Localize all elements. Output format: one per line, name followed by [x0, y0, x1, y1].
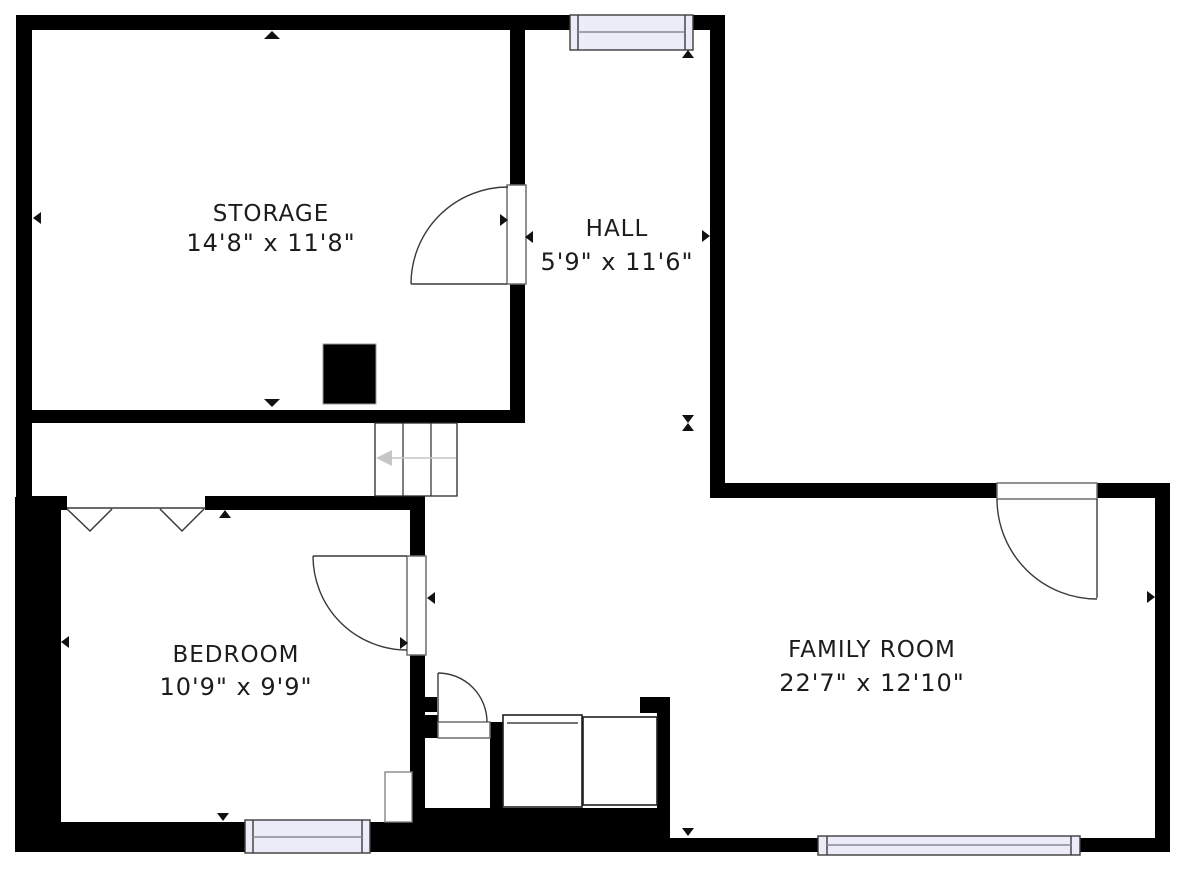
- door-opening: [438, 722, 490, 738]
- room-dims-hall: 5'9" x 11'6": [540, 248, 693, 276]
- door-swing-arc: [997, 499, 1097, 599]
- door-utility: [438, 673, 490, 738]
- floor-plan-canvas: STORAGE 14'8" x 11'8" HALL 5'9" x 11'6" …: [0, 0, 1188, 875]
- wall-stub-b: [425, 715, 438, 738]
- door-family-room: [997, 483, 1097, 599]
- marker-bedroom-top: [219, 510, 231, 518]
- marker-storage-top: [264, 31, 280, 39]
- wall-stub-a: [425, 697, 437, 712]
- marker-storage-left: [33, 212, 41, 224]
- wall-left-upper: [16, 15, 32, 497]
- marker-family-right: [1147, 591, 1155, 603]
- room-dims-bedroom: 10'9" x 9'9": [159, 673, 312, 701]
- wall-bedroom-top-left: [30, 496, 67, 510]
- wall-left-lower: [15, 497, 61, 852]
- door-opening: [507, 185, 526, 284]
- wall-family-top: [710, 483, 1170, 498]
- floor-plan: STORAGE 14'8" x 11'8" HALL 5'9" x 11'6" …: [0, 0, 1188, 875]
- window-bedroom-bottom: [245, 820, 370, 853]
- wall-utility-right: [490, 722, 503, 808]
- appliances: [503, 715, 657, 807]
- room-label-bedroom: BEDROOM: [172, 642, 299, 668]
- wall-bedroom-right-upper: [410, 496, 425, 556]
- bifold-panel: [67, 509, 112, 531]
- door-bedroom: [313, 556, 426, 655]
- marker-bedroom-bottom: [217, 813, 229, 821]
- dimension-markers: [33, 31, 1155, 836]
- marker-hall-bottom-up: [682, 423, 694, 431]
- wall-bottom-mass: [412, 808, 670, 852]
- marker-storage-bottom: [264, 399, 280, 407]
- bifold-panel: [160, 509, 204, 531]
- appliance-right: [583, 717, 657, 805]
- door-swing-arc: [438, 673, 487, 722]
- chimney-pillar: [323, 344, 376, 404]
- window-hall-top: [570, 15, 693, 50]
- marker-hall-top: [682, 50, 694, 58]
- wall-family-right: [1155, 483, 1170, 852]
- marker-bedroom-door-right: [427, 592, 435, 604]
- wall-hall-right: [710, 15, 725, 498]
- staircase: [375, 423, 457, 496]
- appliance-left: [503, 715, 582, 807]
- wall-bedroom-top-right: [205, 496, 425, 510]
- room-dims-storage: 14'8" x 11'8": [186, 229, 355, 257]
- marker-hall-right: [702, 230, 710, 242]
- room-label-hall: HALL: [586, 216, 649, 242]
- room-label-storage: STORAGE: [213, 201, 330, 227]
- room-dims-family-room: 22'7" x 12'10": [779, 669, 965, 697]
- wall-storage-bottom: [16, 410, 525, 423]
- wall-family-left-stub: [640, 697, 670, 713]
- door-opening: [997, 483, 1097, 499]
- closet-bifold-doors: [67, 508, 205, 531]
- door-swing-arc: [313, 556, 407, 650]
- room-label-family-room: FAMILY ROOM: [788, 637, 956, 663]
- wall-niche: [385, 772, 412, 822]
- window-family-bottom: [818, 836, 1080, 855]
- marker-hall-bottom-down: [682, 415, 694, 423]
- room-labels: STORAGE 14'8" x 11'8" HALL 5'9" x 11'6" …: [159, 201, 964, 701]
- door-storage: [411, 185, 526, 284]
- door-opening: [407, 556, 426, 655]
- marker-family-bottom: [682, 828, 694, 836]
- marker-bedroom-left: [61, 636, 69, 648]
- door-swing-arc: [411, 187, 508, 284]
